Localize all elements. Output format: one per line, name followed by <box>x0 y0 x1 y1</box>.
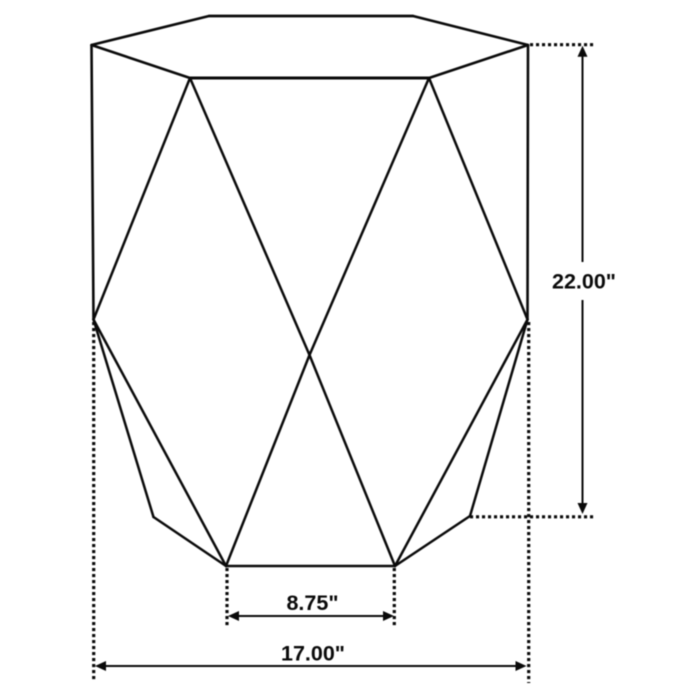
svg-text:22.00": 22.00" <box>552 270 616 294</box>
svg-text:17.00": 17.00" <box>281 642 345 666</box>
svg-text:8.75": 8.75" <box>286 591 338 615</box>
